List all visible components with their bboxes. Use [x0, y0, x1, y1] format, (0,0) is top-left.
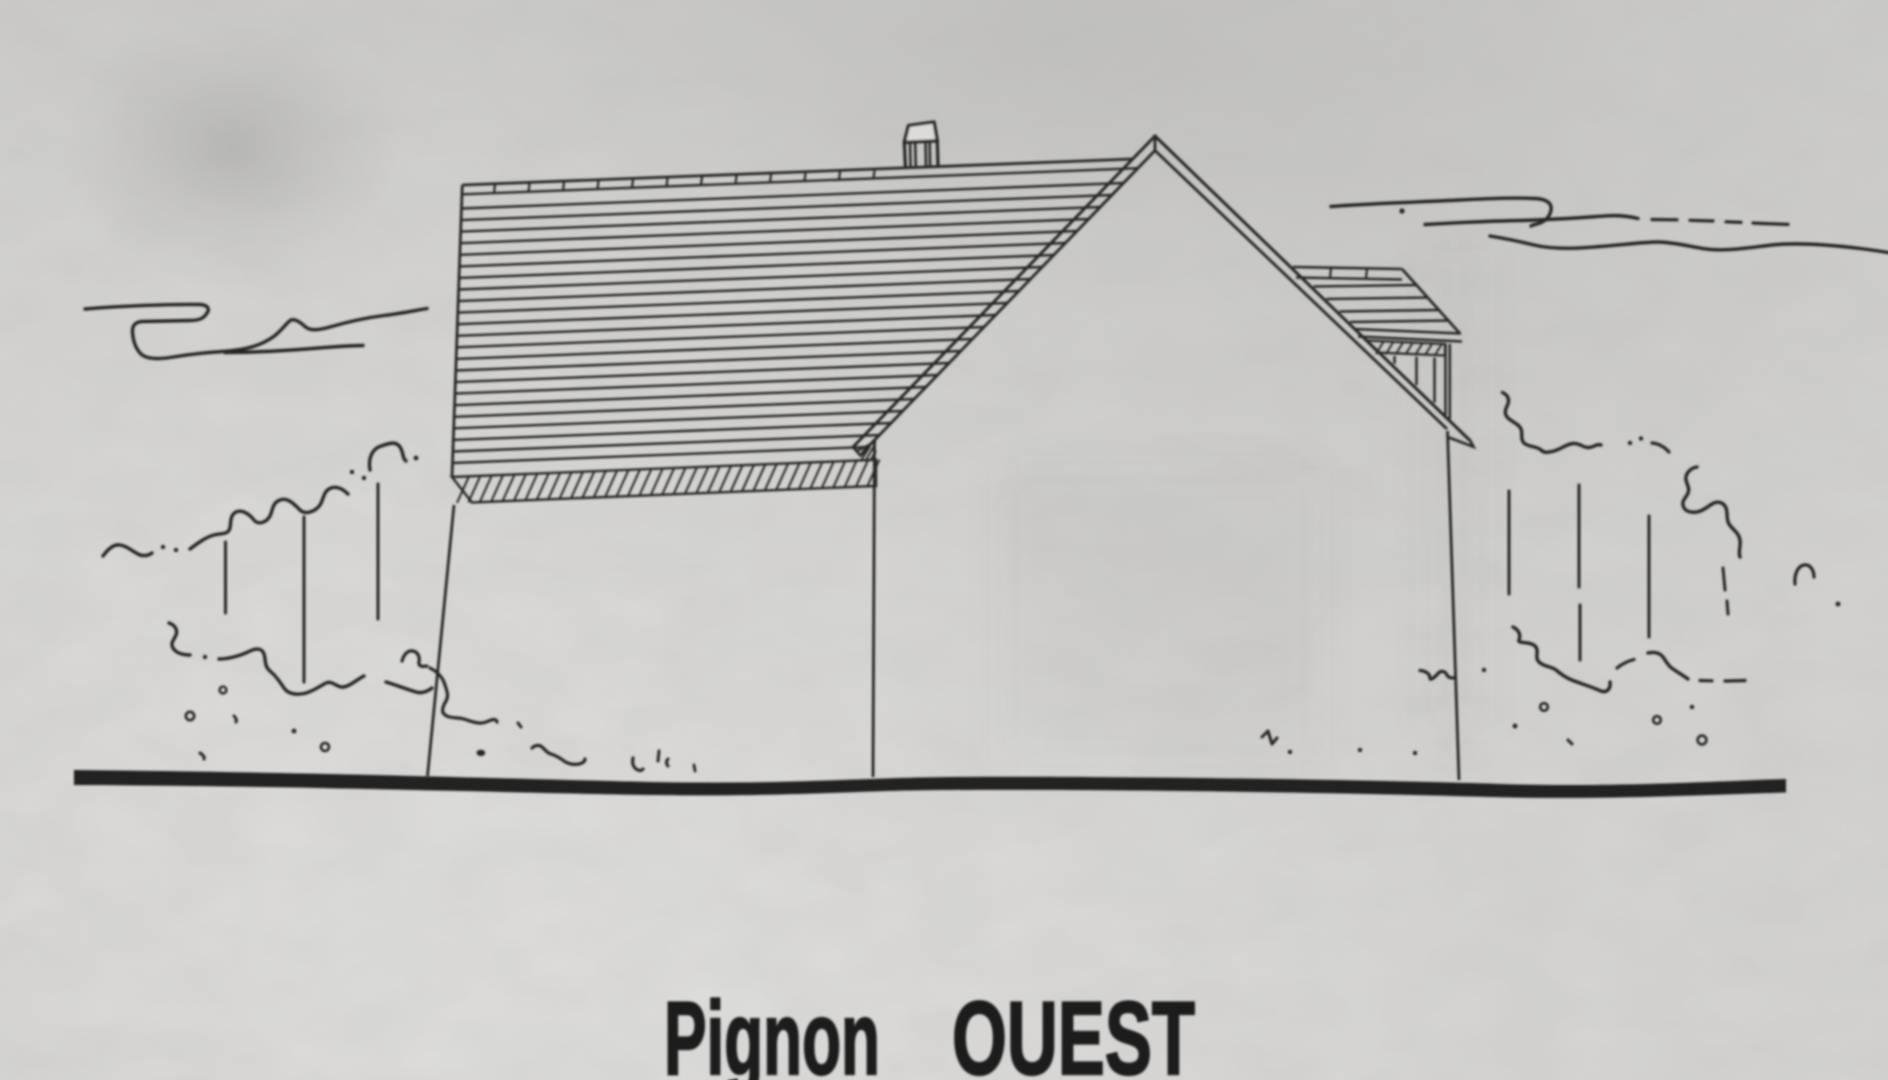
svg-text:Pignon: Pignon	[664, 981, 880, 1080]
svg-text:OUEST: OUEST	[952, 981, 1195, 1080]
